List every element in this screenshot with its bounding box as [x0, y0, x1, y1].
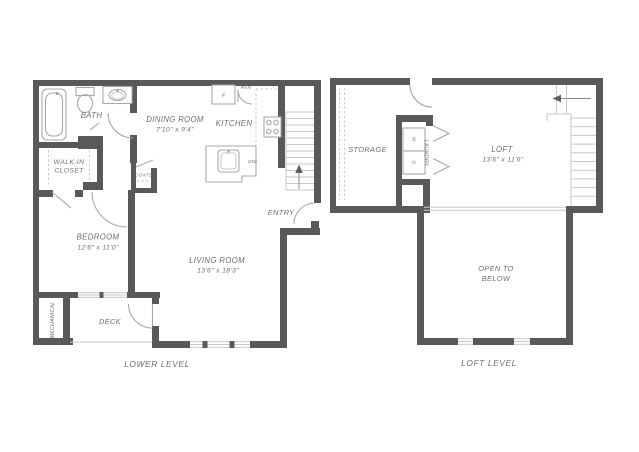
- wall: [417, 338, 573, 345]
- loft-walls: [330, 78, 603, 345]
- bath-door-arc: [108, 113, 133, 138]
- bedroom-dims: 12'6" x 11'0": [77, 245, 119, 252]
- loft-overlook-edge: [424, 207, 566, 210]
- wall: [83, 182, 103, 190]
- bedroom-window: [78, 292, 127, 298]
- floor-plan-canvas: BATH WALK-IN CLOSET DINING ROOM 7'10" x …: [0, 0, 639, 452]
- wall: [596, 78, 603, 213]
- pantry-label: PAN: [241, 85, 252, 91]
- window-mullion: [230, 341, 235, 348]
- open-to-below-label-1: OPEN TO: [478, 264, 514, 273]
- wall: [330, 78, 336, 213]
- wall: [33, 80, 39, 345]
- wall: [432, 78, 603, 85]
- window-mullion: [510, 338, 514, 345]
- toilet-bowl-icon: [78, 95, 93, 113]
- window-mullion: [100, 292, 104, 298]
- loft-label: LOFT: [491, 145, 513, 154]
- mechanical-label: MECHANICAL: [50, 302, 56, 339]
- dining-room-label: DINING ROOM: [146, 115, 204, 124]
- wall: [417, 213, 424, 345]
- storage-dashes: [340, 88, 345, 200]
- dryer-label: D: [411, 161, 417, 165]
- entry-door-arc: [294, 203, 315, 224]
- dining-room-dims: 7'10" x 9'4": [156, 127, 194, 134]
- kitchen-fixtures: [206, 85, 281, 182]
- laundry-label: LAUNDRY: [423, 140, 429, 167]
- deck-door-arc: [129, 304, 153, 328]
- deck-label: DECK: [99, 317, 122, 326]
- living-room-label: LIVING ROOM: [189, 256, 245, 265]
- wall: [330, 206, 430, 213]
- open-to-below-label-2: BELOW: [482, 274, 511, 283]
- wall: [130, 135, 137, 163]
- tub-faucet-icon: [56, 92, 59, 95]
- stair-rail: [547, 114, 571, 121]
- walkin-closet-label-1: WALK-IN: [54, 159, 85, 166]
- loft-level-title: LOFT LEVEL: [461, 358, 517, 368]
- living-room-window: [190, 341, 250, 348]
- fridge-label: F: [222, 94, 226, 100]
- wall: [396, 179, 430, 185]
- lower-level-title: LOWER LEVEL: [124, 359, 190, 369]
- kitchen-label: KITCHEN: [216, 119, 253, 128]
- kitchen-faucet-icon: [228, 151, 230, 153]
- wall: [152, 326, 159, 341]
- wall: [33, 80, 321, 86]
- wall: [311, 221, 319, 229]
- pantry-door-arc: [238, 90, 252, 104]
- wall: [151, 168, 157, 193]
- loft-entry-door-arc: [410, 85, 432, 107]
- open-below-window-2: [510, 338, 530, 345]
- stair-up-arrow-icon: [295, 165, 303, 174]
- walkin-closet-label-2: CLOSET: [54, 168, 84, 175]
- wall: [75, 190, 83, 197]
- entry-label: ENTRY: [268, 208, 295, 217]
- loft-level-plan: STORAGE LAUNDRY W D LOFT 13'6" x 11'6" O…: [330, 78, 603, 368]
- open-below-window: [458, 338, 477, 345]
- window-mullion: [203, 341, 208, 348]
- dishwasher-label: DW: [248, 159, 257, 165]
- coats-label: COATS: [135, 173, 153, 179]
- wall: [566, 213, 573, 345]
- loft-stairs: [547, 85, 596, 206]
- stair-treads: [286, 112, 314, 190]
- wall: [426, 115, 433, 126]
- sink-faucet-icon: [117, 90, 119, 92]
- wall: [33, 142, 78, 148]
- storage-label: STORAGE: [348, 145, 386, 154]
- closet-door-leaf: [52, 192, 71, 208]
- washer-label: W: [411, 137, 417, 142]
- wall: [314, 80, 321, 203]
- wall: [128, 190, 135, 298]
- bifold-door-leaf: [433, 126, 449, 142]
- wall: [33, 190, 53, 197]
- lower-level-plan: BATH WALK-IN CLOSET DINING ROOM 7'10" x …: [33, 80, 321, 369]
- bedroom-label: BEDROOM: [77, 233, 120, 242]
- living-room-dims: 13'6" x 18'3": [197, 268, 239, 275]
- wall: [330, 78, 410, 85]
- linen-door-leaf: [90, 123, 99, 130]
- floor-plan-svg: BATH WALK-IN CLOSET DINING ROOM 7'10" x …: [0, 0, 639, 452]
- lower-stairs: [286, 112, 314, 190]
- wall: [280, 228, 287, 342]
- bath-label: BATH: [81, 111, 103, 120]
- coats-door-leaf: [136, 160, 153, 167]
- bedroom-door-arc: [92, 192, 127, 227]
- bifold-door-leaf: [433, 159, 449, 175]
- stair-treads: [571, 118, 596, 196]
- stove-icon: [264, 117, 281, 137]
- wall: [63, 298, 70, 339]
- window-mullion: [473, 338, 477, 345]
- wall: [396, 115, 402, 206]
- loft-dims: 13'6" x 11'6": [482, 157, 524, 164]
